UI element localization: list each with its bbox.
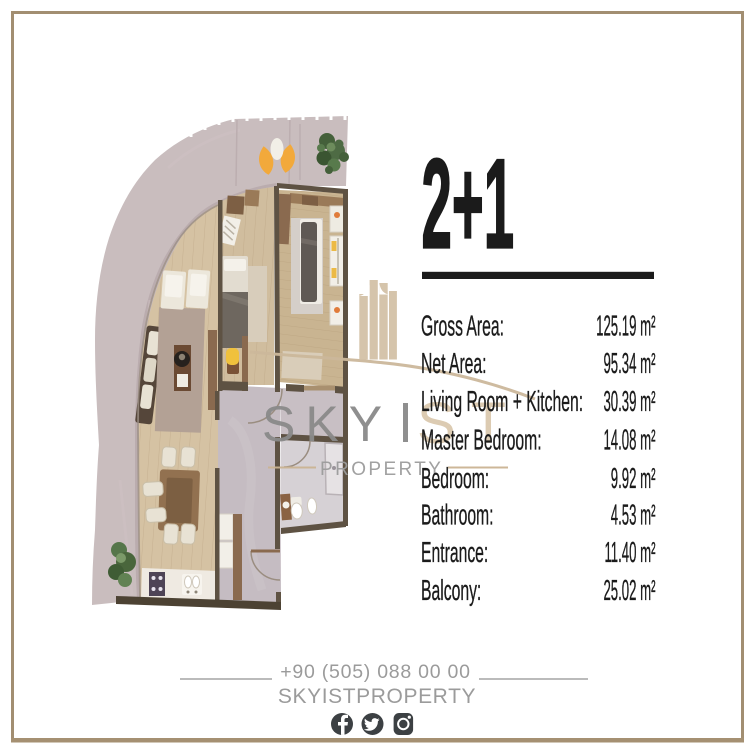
svg-text:Bathroom:: Bathroom: [421, 498, 494, 530]
svg-text:14.08 m²: 14.08 m² [603, 424, 655, 456]
svg-text:Entrance:: Entrance: [421, 536, 488, 568]
svg-text:9.92 m²: 9.92 m² [611, 462, 656, 494]
svg-text:125.19 m²: 125.19 m² [596, 310, 655, 342]
svg-text:Net Area:: Net Area: [421, 347, 487, 379]
svg-text:Gross Area:: Gross Area: [421, 309, 504, 341]
svg-text:30.39 m²: 30.39 m² [603, 385, 655, 417]
svg-text:SKYISTPROPERTY: SKYISTPROPERTY [278, 685, 476, 708]
svg-text:Bedroom:: Bedroom: [421, 462, 489, 494]
svg-text:4.53 m²: 4.53 m² [611, 499, 656, 531]
svg-text:11.40 m²: 11.40 m² [604, 536, 655, 568]
svg-text:95.34 m²: 95.34 m² [603, 347, 655, 379]
svg-text:25.02 m²: 25.02 m² [603, 574, 655, 606]
svg-text:Master Bedroom:: Master Bedroom: [421, 423, 542, 455]
svg-text:+90 (505) 088 00 00: +90 (505) 088 00 00 [280, 661, 470, 683]
svg-text:Living Room + Kitchen:: Living Room + Kitchen: [421, 385, 583, 417]
svg-text:SKY: SKY [262, 396, 392, 452]
svg-text:Balcony:: Balcony: [421, 574, 481, 606]
svg-text:2+1: 2+1 [422, 133, 515, 275]
